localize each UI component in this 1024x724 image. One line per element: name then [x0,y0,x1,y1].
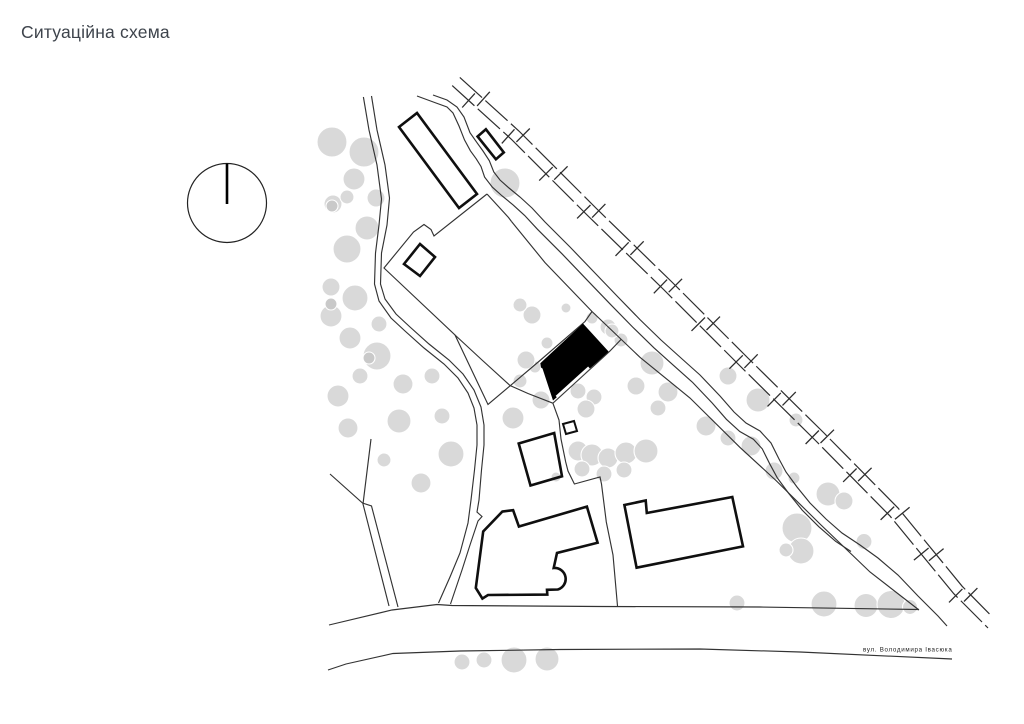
svg-text:вул. Володимира Івасюка: вул. Володимира Івасюка [863,647,952,654]
